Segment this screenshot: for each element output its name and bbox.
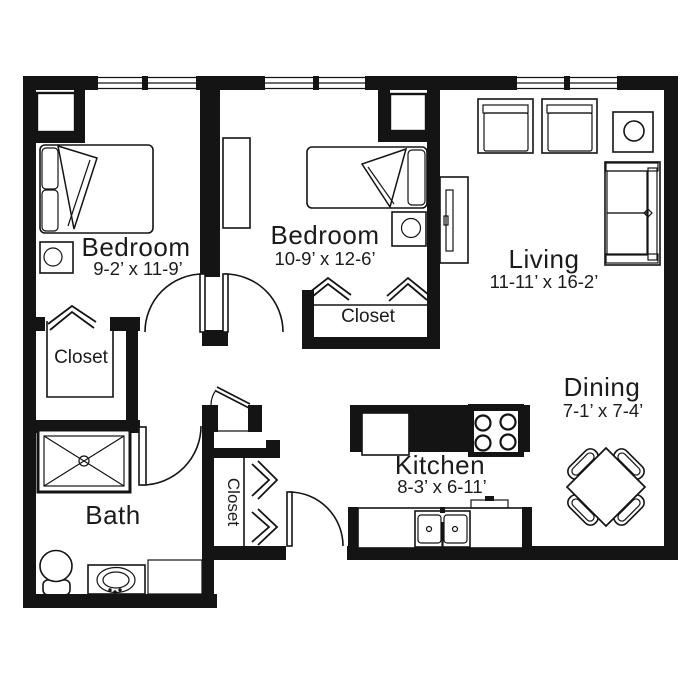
sofa-icon [605,162,660,265]
floor-plan-page: Bedroom 9-2’ x 11-9’ Bedroom 10-9’ x 12-… [0,0,700,700]
dining-label: Dining [564,372,641,402]
bedroom2-closet: Closet [305,278,429,327]
entry-closet: Closet [211,387,277,546]
wardrobe-cabinet-icon [390,94,426,131]
armchair-icon [478,99,533,153]
bath: Bath [38,426,202,595]
bedroom2-dims: 10-9’ x 12-6’ [274,248,375,269]
bedroom2-label: Bedroom [271,220,380,250]
door-swing-arc [145,274,203,332]
bath-sink-icon [88,565,145,594]
bedroom1-dims: 9-2’ x 11-9’ [93,258,182,279]
dining-dims: 7-1’ x 7-4’ [563,400,644,421]
bath-door [139,426,201,485]
kitchen-sink-icon [415,507,470,547]
bedroom2-closet-label: Closet [341,306,396,327]
closet-top-door [211,387,250,408]
wardrobe-cabinet-icon [37,93,75,132]
windows [98,76,617,90]
door-leaf [287,492,292,546]
toilet-icon [40,551,72,596]
bifold-door-icon [252,461,277,545]
nightstand-icon [40,242,73,273]
bedroom1: Bedroom 9-2’ x 11-9’ [37,93,191,279]
door-swing-arc [225,274,283,332]
window-bedroom2 [265,76,365,90]
entry-closet-label: Closet [224,478,243,526]
fridge-icon [362,413,409,455]
floor-plan-canvas: Bedroom 9-2’ x 11-9’ Bedroom 10-9’ x 12-… [0,0,700,700]
kitchen: Kitchen 8-3’ x 6-11’ [348,404,532,560]
door-swing-arc [289,492,343,546]
bedroom1-closet: Closet [47,306,113,397]
bed-icon [307,147,427,208]
tv-console-icon [440,177,468,263]
living-dims: 11-11’ x 16-2’ [490,271,599,292]
shower-icon [38,430,130,492]
window-living [517,76,617,90]
bath-label: Bath [85,500,141,530]
bed-icon [40,145,153,233]
kitchen-dims: 8-3’ x 6-11’ [397,476,486,497]
dining: Dining 7-1’ x 7-4’ [563,372,647,528]
living-label: Living [509,244,580,274]
bedroom2: Bedroom 10-9’ x 12-6’ Closet [223,94,429,327]
stove-icon [474,411,518,452]
dining-table-icon [567,448,645,526]
door-leaf [200,274,205,332]
living: Living 11-11’ x 16-2’ [440,99,660,292]
armchair-icon [542,99,597,153]
bedroom1-closet-label: Closet [54,347,109,368]
side-table-lamp-icon [613,112,653,152]
nightstand-icon [392,212,426,246]
bedroom-doors [145,274,283,332]
door-leaf [223,274,228,332]
window-bedroom1 [98,76,196,90]
entry-door [287,492,343,546]
bath-alcove [148,560,202,594]
dresser-icon [223,138,250,228]
